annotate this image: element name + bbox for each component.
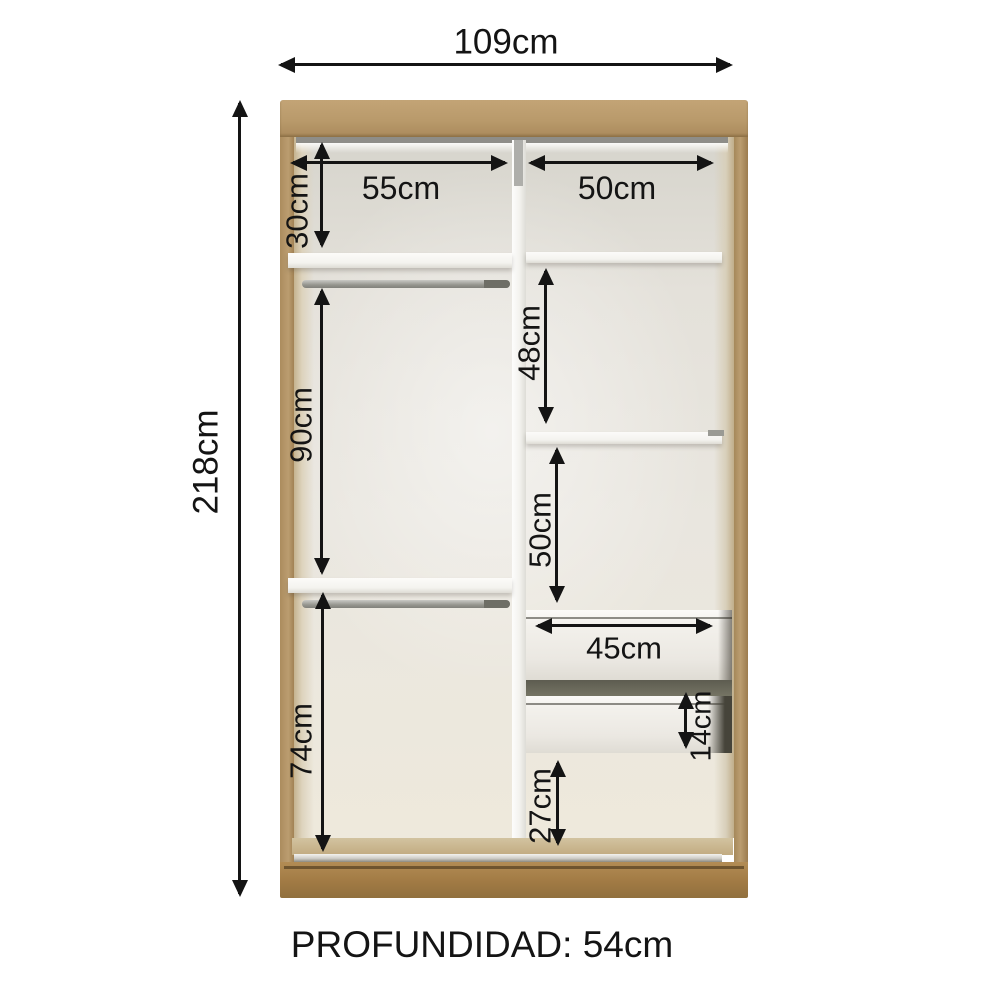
top-panel	[280, 100, 748, 137]
shelf-right-middle	[526, 432, 722, 444]
arrow-line	[320, 291, 323, 572]
dim-label-overall-height: 218cm	[189, 409, 224, 514]
dim-arrow-base-gap-height	[550, 760, 566, 846]
shelf-left-upper	[288, 253, 512, 268]
dim-label-top-shelf-height: 30cm	[282, 173, 313, 249]
dim-label-left-column-width: 55cm	[362, 172, 440, 204]
dim-arrow-left-hanging-lower	[315, 592, 331, 852]
dim-arrow-drawer-front-height	[678, 692, 694, 749]
dim-arrow-top-shelf-height	[314, 142, 330, 248]
base-plinth	[280, 862, 748, 898]
arrow-line	[555, 450, 558, 600]
right-side-panel	[734, 137, 748, 862]
dim-arrow-overall-width	[278, 57, 733, 73]
arrow-line	[531, 161, 711, 164]
hanging-rod-lower	[302, 600, 510, 608]
wardrobe-dimension-diagram: 109cm 218cm 55cm 50cm	[0, 0, 1000, 1000]
divider-top-bracket	[514, 140, 523, 186]
arrow-line	[321, 595, 324, 849]
dim-arrow-overall-height	[232, 100, 248, 897]
dim-arrow-right-column-width	[528, 155, 714, 171]
hanging-rod-upper	[302, 280, 510, 288]
dim-label-left-hanging-upper: 90cm	[286, 387, 317, 463]
dim-arrow-drawer-width	[535, 618, 713, 634]
wardrobe-body	[280, 100, 748, 898]
sliding-door-bottom-rail	[294, 854, 722, 862]
dim-label-overall-width: 109cm	[453, 25, 558, 60]
arrow-line	[281, 63, 730, 66]
cabinet-floor	[292, 838, 733, 855]
arrow-line	[556, 763, 559, 843]
dim-label-left-hanging-lower: 74cm	[286, 703, 317, 779]
arrow-line	[320, 145, 323, 245]
dim-arrow-right-gap-lower	[549, 447, 565, 603]
shelf-left-lower	[288, 578, 512, 593]
arrow-line	[538, 624, 710, 627]
arrow-line	[544, 271, 547, 421]
shelf-right-upper	[526, 252, 722, 263]
arrow-line	[238, 103, 241, 894]
dim-arrow-right-gap-upper	[538, 268, 554, 424]
center-divider-panel	[512, 140, 526, 838]
arrow-line	[684, 695, 687, 746]
dim-label-drawer-width: 45cm	[586, 633, 662, 664]
dim-label-right-column-width: 50cm	[578, 172, 656, 204]
dim-arrow-left-hanging-upper	[314, 288, 330, 575]
depth-label: PROFUNDIDAD: 54cm	[291, 924, 673, 966]
